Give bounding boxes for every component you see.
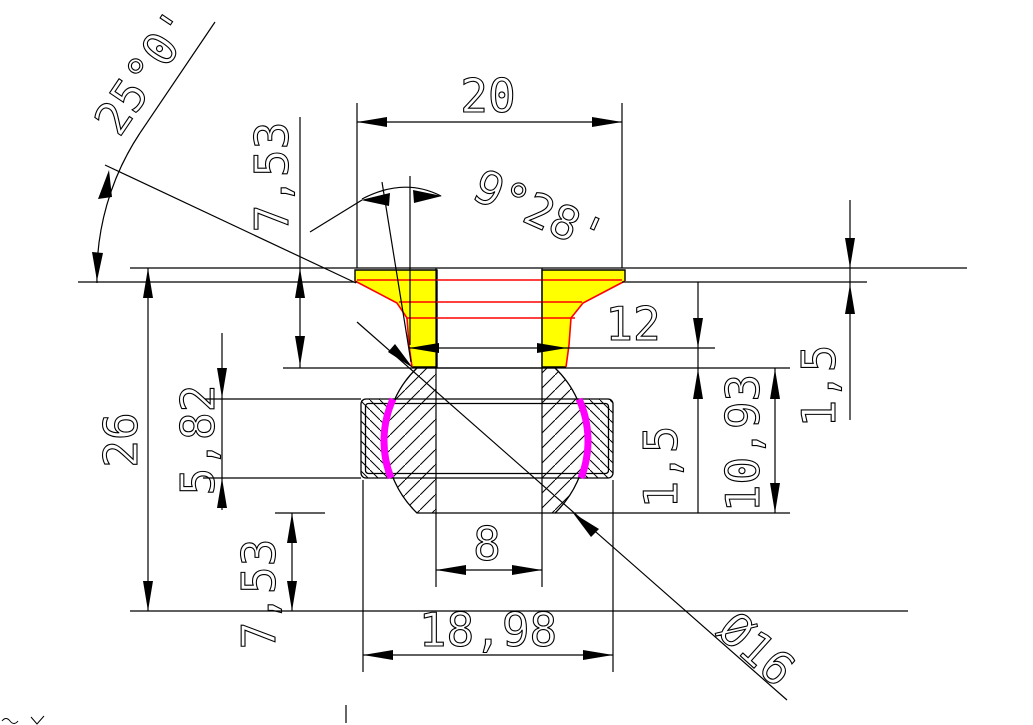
ball-hatch-left [386, 368, 436, 513]
dim-ball-height-label: 10,93 [716, 374, 770, 512]
dim-top-width-label: 20 [460, 69, 515, 123]
dim-head-height-label: 7,53 [245, 122, 299, 233]
engineering-drawing: 20 12 8 18,98 26 7,53 7,53 5,82 1,5 10,9… [0, 0, 1033, 725]
dim-neck-clearance-label: 1,5 [634, 425, 688, 508]
dim-recess-depth-label: 1,5 [792, 344, 846, 427]
dim-ring-width-label: 18,98 [419, 603, 557, 657]
dim-bottom-offset-label: 7,53 [232, 539, 286, 650]
dim-ring-height-label: 5,82 [171, 385, 225, 496]
dim-ball-diameter-label: Ø16 [708, 601, 806, 697]
dim-total-height-label: 26 [94, 412, 148, 467]
cad-drawing-canvas: 20 12 8 18,98 26 7,53 7,53 5,82 1,5 10,9… [0, 0, 1033, 725]
dim-taper-angle-label: 9°28' [465, 159, 613, 265]
dim-head-angle-label: 25°0' [84, 0, 206, 145]
ball-section [386, 368, 586, 513]
dim-neck-width-label: 12 [605, 297, 660, 351]
dim-bore-width-label: 8 [473, 517, 501, 571]
ball-hatch-right [542, 368, 586, 513]
